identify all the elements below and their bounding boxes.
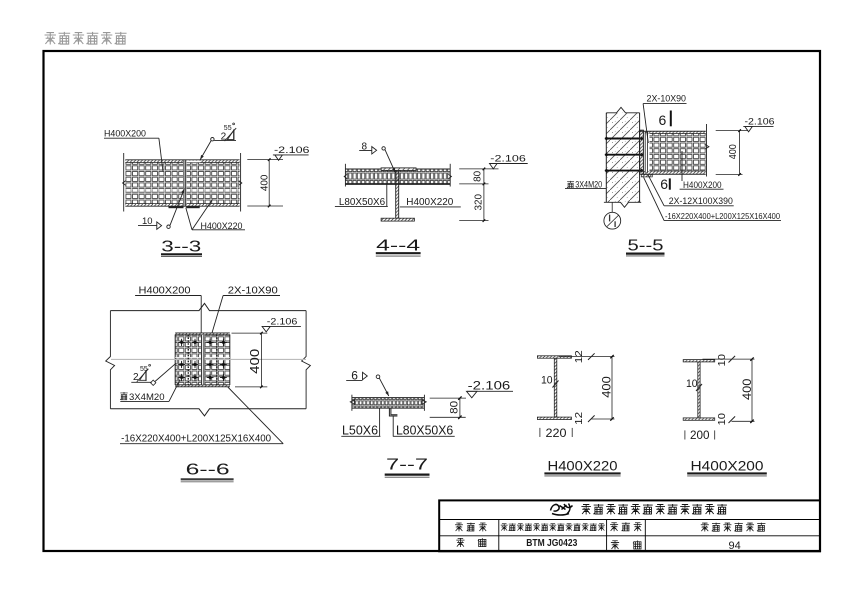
svg-text:320: 320 [473,194,484,211]
svg-text:6: 6 [659,112,667,128]
svg-text:H400X220: H400X220 [548,458,618,473]
svg-text:400: 400 [728,144,739,159]
svg-text:BTM JG0423: BTM JG0423 [526,537,577,549]
svg-text:2: 2 [221,131,227,142]
svg-text:55: 55 [140,366,148,373]
svg-text:94: 94 [728,540,740,552]
svg-text:400: 400 [259,174,270,191]
svg-text:H400X200: H400X200 [691,458,764,473]
svg-text:-16X220X400+L200X125X16X400: -16X220X400+L200X125X16X400 [665,212,781,221]
svg-text:400: 400 [740,378,754,400]
svg-text:80: 80 [449,401,461,414]
svg-text:200: 200 [690,428,710,442]
svg-text:220: 220 [546,426,567,440]
svg-text:H400X200: H400X200 [139,284,191,296]
svg-text:7--7: 7--7 [386,456,428,473]
svg-text:-2.106: -2.106 [745,117,775,128]
svg-text:10: 10 [142,216,153,226]
svg-text:-2.106: -2.106 [468,381,511,393]
svg-text:2X-12X100X390: 2X-12X100X390 [669,196,733,206]
svg-text:5--5: 5--5 [628,237,664,254]
svg-text:3--3: 3--3 [161,238,201,255]
svg-text:400: 400 [248,349,262,374]
svg-text:L50X6: L50X6 [342,423,378,437]
svg-text:2X-10X90: 2X-10X90 [228,284,278,296]
svg-text:10: 10 [541,375,553,387]
svg-text:80: 80 [472,170,483,181]
svg-text:4--4: 4--4 [376,237,421,254]
svg-text:-16X220X400+L200X125X16X400: -16X220X400+L200X125X16X400 [121,434,271,445]
svg-text:2: 2 [133,372,139,383]
svg-text:6--6: 6--6 [186,462,230,479]
svg-text:55: 55 [224,125,232,132]
svg-text:12: 12 [574,411,585,425]
svg-text:10: 10 [717,354,728,367]
svg-text:2X-10X90: 2X-10X90 [647,94,687,105]
svg-text:10: 10 [686,378,698,390]
svg-text:L80X50X6: L80X50X6 [396,423,453,437]
svg-text:400: 400 [600,376,614,398]
svg-text:10: 10 [717,412,728,425]
svg-text:6: 6 [660,176,668,192]
